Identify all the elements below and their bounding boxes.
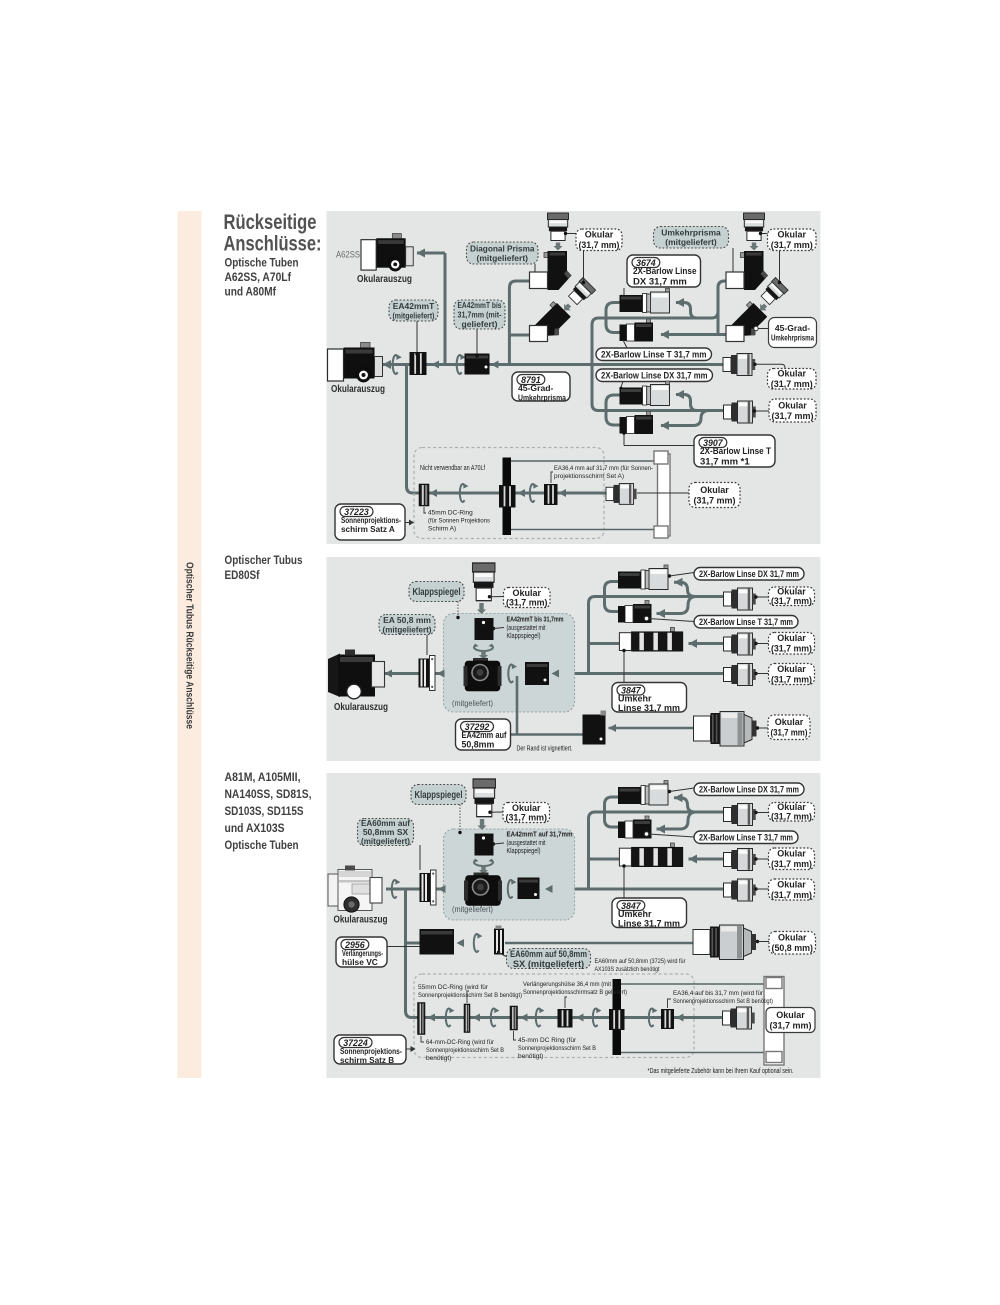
- svg-text:(31,7 mm): (31,7 mm): [771, 812, 812, 822]
- svg-text:2X-Barlow Linse DX 31,7 mm: 2X-Barlow Linse DX 31,7 mm: [699, 785, 799, 796]
- svg-text:2X-Barlow Linse T 31,7 mm: 2X-Barlow Linse T 31,7 mm: [699, 833, 793, 844]
- svg-text:(mitgeliefert): (mitgeliefert): [477, 253, 529, 263]
- svg-text:Klappspiegel): Klappspiegel): [507, 633, 541, 640]
- svg-text:Okular: Okular: [777, 664, 806, 674]
- svg-text:(31,7 mm): (31,7 mm): [771, 890, 812, 900]
- svg-text:benötigt): benötigt): [518, 1053, 543, 1060]
- svg-text:(31,7 mm): (31,7 mm): [579, 240, 620, 250]
- svg-text:(31,7 mm): (31,7 mm): [506, 597, 548, 607]
- svg-text:SD103S, SD115S: SD103S, SD115S: [225, 804, 304, 818]
- svg-text:Okular: Okular: [775, 717, 804, 727]
- svg-text:Umkehrprisma: Umkehrprisma: [661, 228, 721, 238]
- svg-text:projektionsschirm Set A): projektionsschirm Set A): [554, 473, 624, 480]
- svg-text:Anschlüsse:: Anschlüsse:: [224, 232, 322, 256]
- svg-text:Okularauszug: Okularauszug: [334, 702, 388, 713]
- svg-text:55mm DC-Ring (wird für: 55mm DC-Ring (wird für: [418, 984, 489, 991]
- svg-text:(31,7 mm): (31,7 mm): [771, 240, 813, 250]
- svg-text:(31,7 mm): (31,7 mm): [771, 644, 812, 654]
- svg-text:Der Rand ist vignettiert.: Der Rand ist vignettiert.: [517, 746, 573, 753]
- svg-text:31,7mm (mit-: 31,7mm (mit-: [458, 310, 502, 320]
- svg-text:EA42mmT bis: EA42mmT bis: [458, 300, 502, 310]
- svg-text:benötigt): benötigt): [426, 1055, 451, 1062]
- svg-text:Umkehr: Umkehr: [618, 694, 652, 704]
- svg-text:und A80Mf: und A80Mf: [225, 285, 277, 299]
- svg-text:2X-Barlow Linse DX 31,7 mm: 2X-Barlow Linse DX 31,7 mm: [699, 569, 799, 580]
- svg-text:Okular: Okular: [777, 230, 806, 240]
- svg-text:Umkehrprisma: Umkehrprisma: [771, 332, 814, 342]
- svg-text:Linse 31,7 mm: Linse 31,7 mm: [618, 919, 680, 929]
- svg-text:Okular: Okular: [776, 1010, 805, 1020]
- svg-text:Rückseitige: Rückseitige: [224, 210, 317, 234]
- svg-text:Sonnenprojektionsschirm Set B: Sonnenprojektionsschirm Set B benötigt): [673, 998, 773, 1005]
- svg-text:Okular: Okular: [700, 485, 729, 495]
- svg-text:(für Sonnen Projektions: (für Sonnen Projektions: [428, 518, 491, 525]
- svg-text:2X-Barlow Linse T: 2X-Barlow Linse T: [700, 446, 771, 457]
- svg-text:2X-Barlow Linse T 31,7 mm: 2X-Barlow Linse T 31,7 mm: [699, 617, 793, 628]
- svg-text:NA140SS, SD81S,: NA140SS, SD81S,: [225, 787, 312, 801]
- svg-text:50,8mm: 50,8mm: [462, 740, 495, 750]
- svg-text:Okular: Okular: [512, 588, 541, 598]
- svg-text:45-mm DC Ring (für: 45-mm DC Ring (für: [518, 1037, 577, 1044]
- svg-text:A81M, A105MII,: A81M, A105MII,: [225, 770, 301, 784]
- svg-text:(ausgestattet mit: (ausgestattet mit: [507, 625, 546, 632]
- svg-text:EA 50,8 mm: EA 50,8 mm: [383, 615, 431, 625]
- svg-text:45-Grad-: 45-Grad-: [518, 383, 553, 393]
- svg-text:Verlängerungshülse 36,4 mm (mi: Verlängerungshülse 36,4 mm (mit: [523, 981, 611, 988]
- svg-text:schirm Satz A: schirm Satz A: [341, 525, 395, 534]
- svg-text:DX 31,7 mm: DX 31,7 mm: [633, 277, 687, 288]
- svg-text:45-Grad-: 45-Grad-: [775, 323, 810, 333]
- svg-text:SX (mitgeliefert): SX (mitgeliefert): [513, 959, 584, 969]
- svg-text:EA60mm auf 50,8mm (3725) wird: EA60mm auf 50,8mm (3725) wird für: [595, 958, 687, 965]
- svg-text:Okularauszug: Okularauszug: [357, 274, 412, 285]
- svg-text:Okular: Okular: [585, 230, 614, 240]
- svg-text:Sonnenprojektionsschirm Set B: Sonnenprojektionsschirm Set B benötigt): [418, 992, 522, 999]
- svg-text:64-mm-DC-Ring (wird für: 64-mm-DC-Ring (wird für: [426, 1039, 495, 1046]
- svg-text:(31,7 mm): (31,7 mm): [771, 859, 812, 869]
- svg-text:Okular: Okular: [777, 802, 806, 812]
- svg-text:Klappspiegel: Klappspiegel: [415, 790, 463, 801]
- svg-text:und AX103S: und AX103S: [225, 821, 285, 835]
- svg-text:Sonnenprojektions-: Sonnenprojektions-: [341, 516, 401, 525]
- svg-text:(31,7 mm): (31,7 mm): [771, 674, 812, 684]
- svg-text:Okular: Okular: [777, 879, 806, 889]
- svg-text:Diagonal Prisma: Diagonal Prisma: [470, 243, 535, 253]
- svg-text:(31,7 mm): (31,7 mm): [693, 495, 735, 505]
- svg-text:Optische Tuben: Optische Tuben: [225, 256, 299, 270]
- svg-text:Schirm A): Schirm A): [428, 526, 456, 533]
- svg-text:(31,7 mm): (31,7 mm): [506, 812, 548, 822]
- svg-text:(31,7 mm): (31,7 mm): [771, 379, 813, 389]
- svg-text:schirm Satz B: schirm Satz B: [340, 1056, 394, 1065]
- svg-text:EA42mmT bis 31,7mm: EA42mmT bis 31,7mm: [507, 615, 564, 624]
- svg-text:Okularauszug: Okularauszug: [334, 915, 388, 926]
- svg-text:EA42mm auf: EA42mm auf: [462, 730, 507, 740]
- svg-text:Okularauszug: Okularauszug: [331, 384, 385, 395]
- svg-text:Optischer Tubus Rückseitige An: Optischer Tubus Rückseitige Anschlüsse: [184, 562, 196, 729]
- svg-text:31,7 mm *1: 31,7 mm *1: [700, 457, 750, 468]
- svg-text:(31,7 mm): (31,7 mm): [771, 728, 808, 738]
- svg-text:Okular: Okular: [778, 933, 807, 943]
- svg-text:2X-Barlow Linse DX 31,7 mm: 2X-Barlow Linse DX 31,7 mm: [601, 371, 708, 382]
- svg-text:ED80Sf: ED80Sf: [225, 568, 261, 582]
- svg-text:Okular: Okular: [777, 633, 806, 643]
- svg-text:EA60mm auf 50,8mm: EA60mm auf 50,8mm: [510, 949, 587, 959]
- svg-text:(ausgestattet mit: (ausgestattet mit: [507, 840, 546, 847]
- svg-text:Okular: Okular: [777, 369, 806, 379]
- svg-text:Optischer Tubus: Optischer Tubus: [225, 553, 303, 567]
- svg-text:Okular: Okular: [777, 587, 806, 597]
- svg-text:(mitgeliefert): (mitgeliefert): [665, 237, 717, 247]
- svg-text:45mm DC-Ring: 45mm DC-Ring: [428, 510, 473, 517]
- svg-text:Optische Tuben: Optische Tuben: [225, 838, 299, 852]
- svg-text:2X-Barlow Linse T 31,7 mm: 2X-Barlow Linse T 31,7 mm: [601, 350, 707, 361]
- svg-text:(mitgeliefert): (mitgeliefert): [361, 836, 410, 846]
- svg-text:EA36,4 auf bis 31,7 mm (wird f: EA36,4 auf bis 31,7 mm (wird für: [673, 990, 764, 997]
- svg-text:Umkehrprisma: Umkehrprisma: [518, 393, 566, 403]
- svg-text:EA42mmT auf 31,7mm: EA42mmT auf 31,7mm: [507, 830, 573, 839]
- svg-text:hülse VC: hülse VC: [342, 957, 378, 967]
- svg-text:(31,7 mm): (31,7 mm): [772, 411, 814, 421]
- svg-text:Sonnenprojektionsschirmsatz B: Sonnenprojektionsschirmsatz B geliefert): [523, 989, 627, 996]
- svg-text:Okular: Okular: [778, 400, 807, 410]
- svg-text:AX103S zusätzlich benötigt: AX103S zusätzlich benötigt: [595, 966, 660, 973]
- svg-text:2X-Barlow Linse: 2X-Barlow Linse: [633, 266, 697, 277]
- svg-text:Linse 31,7 mm: Linse 31,7 mm: [618, 703, 680, 713]
- svg-text:A62SS, A70Lf: A62SS, A70Lf: [225, 270, 292, 284]
- svg-text:(50,8 mm): (50,8 mm): [772, 943, 814, 953]
- svg-text:EA42mmT: EA42mmT: [393, 301, 435, 311]
- svg-text:geliefert): geliefert): [462, 319, 498, 329]
- svg-text:Sonnenprojektionsschirm Set B: Sonnenprojektionsschirm Set B: [518, 1045, 596, 1052]
- svg-text:*Das mitgelieferte Zubehör kan: *Das mitgelieferte Zubehör kann bei Ihre…: [648, 1068, 794, 1075]
- svg-text:Sonnenprojektions-: Sonnenprojektions-: [340, 1047, 402, 1056]
- svg-text:(mitgeliefert): (mitgeliefert): [452, 698, 493, 708]
- svg-text:Nicht verwendbar an A70Lf: Nicht verwendbar an A70Lf: [420, 465, 485, 472]
- svg-text:(mitgeliefert): (mitgeliefert): [383, 624, 432, 634]
- svg-text:(31,7 mm): (31,7 mm): [769, 1020, 811, 1030]
- svg-text:Klappspiegel): Klappspiegel): [507, 848, 541, 855]
- svg-text:A62SS: A62SS: [336, 250, 360, 261]
- svg-text:Okular: Okular: [777, 849, 806, 859]
- svg-text:Sonnenprojektionsschirm Set B: Sonnenprojektionsschirm Set B: [426, 1047, 504, 1054]
- svg-text:(31,7 mm): (31,7 mm): [771, 596, 812, 606]
- svg-text:Okular: Okular: [512, 803, 541, 813]
- svg-text:Umkehr: Umkehr: [618, 909, 652, 919]
- svg-text:EA36,4 mm auf 31,7 mm (für Son: EA36,4 mm auf 31,7 mm (für Sonnen-: [554, 465, 653, 472]
- svg-text:Klappspiegel: Klappspiegel: [413, 587, 461, 598]
- svg-text:(mitgeliefert): (mitgeliefert): [393, 310, 435, 320]
